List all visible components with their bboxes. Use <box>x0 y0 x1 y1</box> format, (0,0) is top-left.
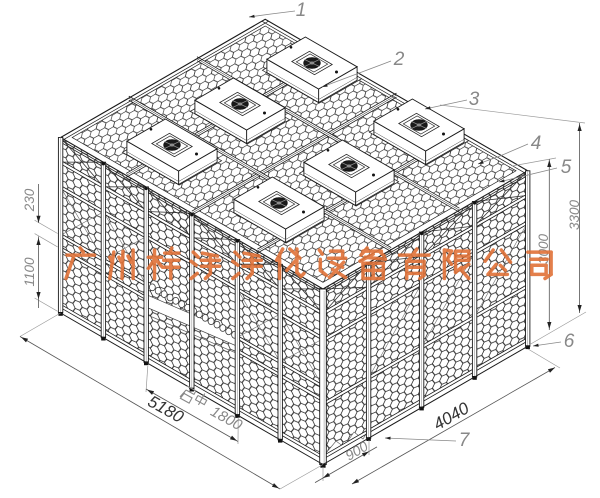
svg-text:3300: 3300 <box>567 199 582 230</box>
svg-text:1100: 1100 <box>22 257 37 287</box>
svg-text:3: 3 <box>469 89 480 110</box>
svg-text:4: 4 <box>531 133 542 154</box>
svg-text:5: 5 <box>561 157 572 178</box>
svg-text:2: 2 <box>393 49 405 70</box>
svg-text:7: 7 <box>459 430 471 451</box>
svg-text:6: 6 <box>564 331 575 352</box>
svg-text:230: 230 <box>22 188 37 212</box>
svg-text:1: 1 <box>296 0 307 21</box>
